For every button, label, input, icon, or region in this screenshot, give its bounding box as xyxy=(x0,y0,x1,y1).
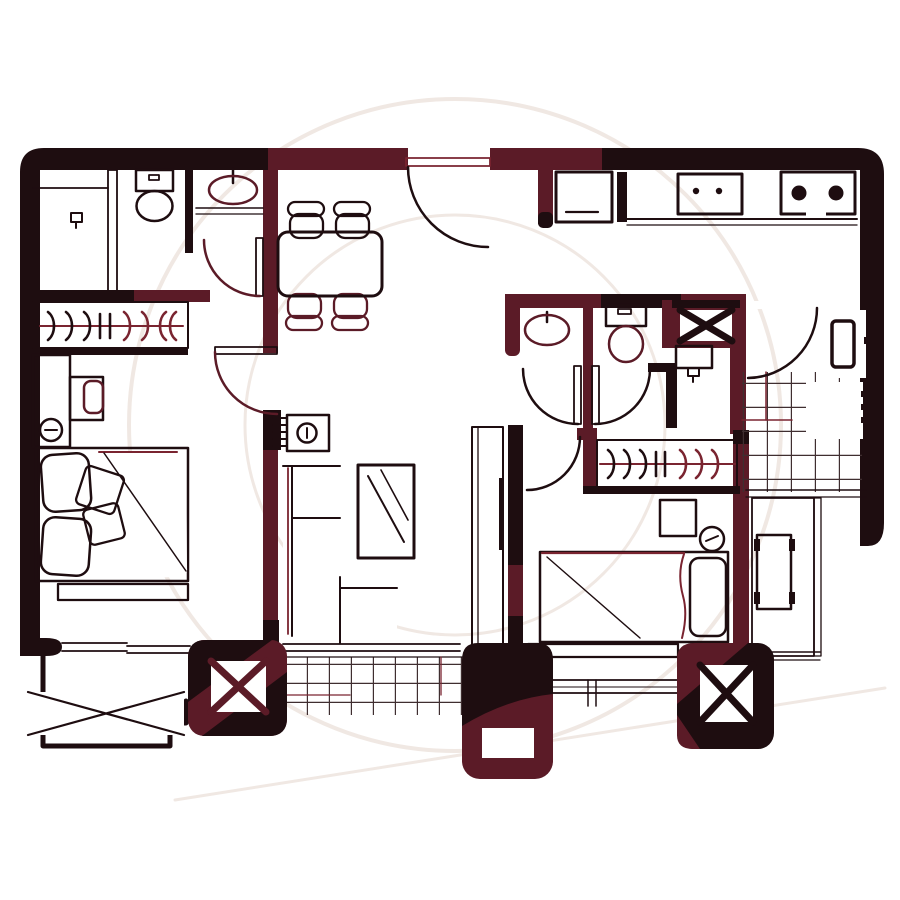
floor-plan xyxy=(0,0,900,900)
service-column-center xyxy=(462,643,553,779)
wall-top-entry-right xyxy=(490,148,602,170)
water-heater xyxy=(820,310,873,378)
wall-bath2-south-leg xyxy=(666,367,677,428)
wall-counter-stub xyxy=(617,172,627,222)
wall-tv-upper xyxy=(508,425,523,567)
duct-shaft xyxy=(672,300,740,348)
burner-right xyxy=(829,186,844,201)
wall-bath2-left xyxy=(505,294,520,356)
closet2-bottom-wall xyxy=(583,486,740,494)
wall-entry-stub-cap xyxy=(538,212,553,228)
wall-accent-black-upper xyxy=(263,410,281,450)
washing-machine xyxy=(806,382,870,439)
wall-bedroom-dining xyxy=(263,170,278,353)
shaft-column-right xyxy=(677,643,774,749)
burner-left xyxy=(792,186,807,201)
tv xyxy=(486,463,498,567)
laundry-sink-basin xyxy=(62,189,90,213)
wall-bath2-divider2 xyxy=(662,300,672,348)
tile-strip xyxy=(287,657,462,715)
tv-back-panel xyxy=(499,478,503,550)
cooktop-notch xyxy=(806,206,826,216)
shaft-column-left xyxy=(188,640,287,736)
ac-platform xyxy=(28,692,184,735)
partition-wc-basin xyxy=(185,153,193,253)
wall-top-dining xyxy=(268,148,408,170)
wall-closet-hall-black xyxy=(33,290,134,302)
wall-closet-hall-maroon xyxy=(134,290,210,302)
door-leaf xyxy=(748,301,817,309)
wall-tv-mid xyxy=(508,565,523,620)
closet2-side-wall xyxy=(583,440,597,487)
column-niche xyxy=(482,728,534,758)
